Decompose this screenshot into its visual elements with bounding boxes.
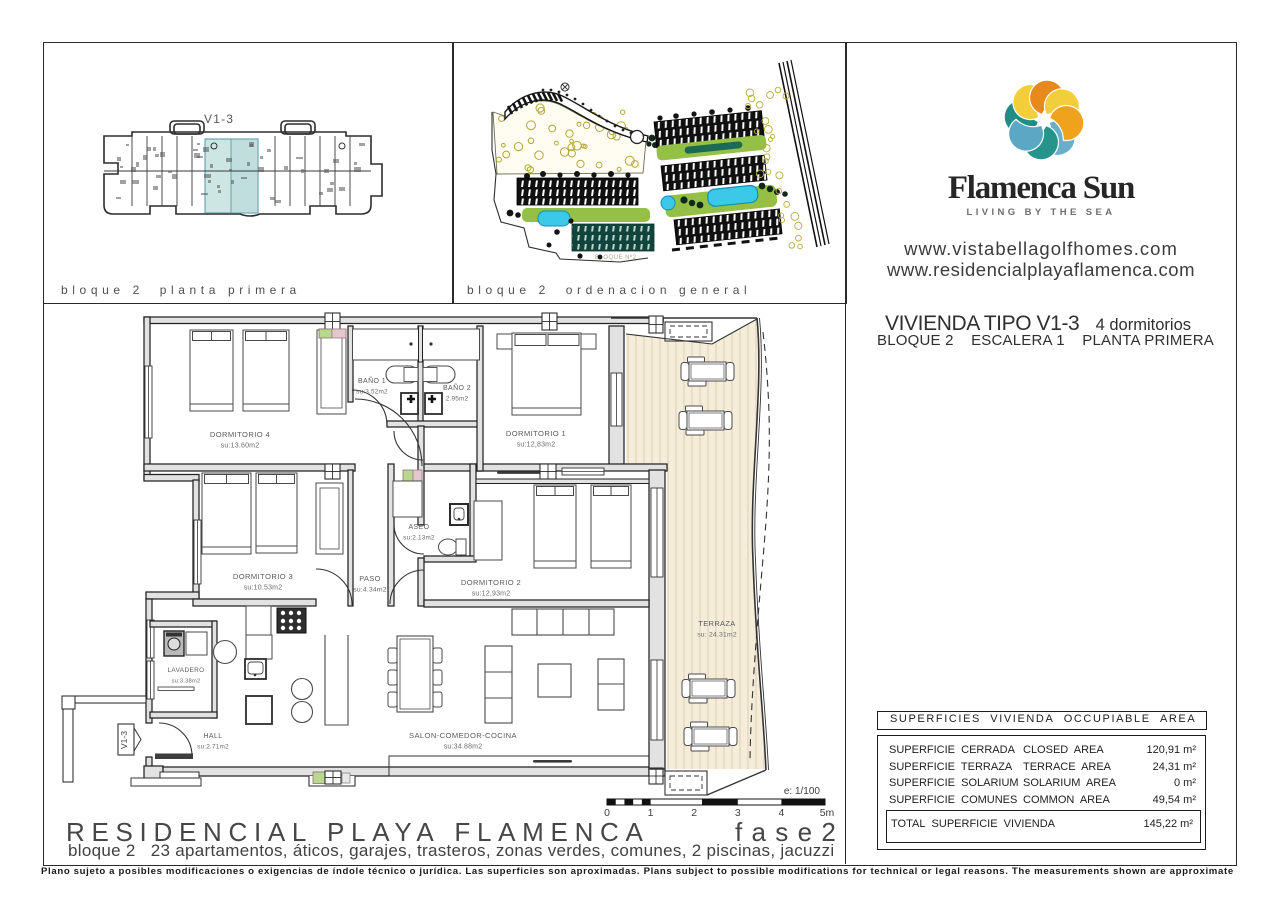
svg-text:ASEO: ASEO: [408, 524, 429, 531]
svg-text:2.95m2: 2.95m2: [446, 396, 469, 403]
svg-text:su:12,83m2: su:12,83m2: [517, 442, 556, 449]
svg-text:su:3.38m2: su:3.38m2: [172, 679, 201, 685]
svg-text:DORMITORIO 1: DORMITORIO 1: [506, 429, 566, 438]
svg-text:DORMITORIO 4: DORMITORIO 4: [210, 430, 270, 439]
svg-text:e: 1/100: e: 1/100: [784, 786, 821, 797]
svg-text:V1-3: V1-3: [204, 112, 234, 126]
svg-text:HALL: HALL: [203, 733, 222, 740]
svg-text:su:12,93m2: su:12,93m2: [472, 591, 511, 598]
svg-text:V1-3: V1-3: [119, 731, 129, 749]
svg-text:su:2.13m2: su:2.13m2: [403, 535, 435, 542]
svg-text:su:10.53m2: su:10.53m2: [244, 585, 283, 592]
svg-text:PASO: PASO: [359, 574, 381, 583]
svg-text:BAÑO 2: BAÑO 2: [443, 383, 471, 392]
svg-text:su:4.34m2: su:4.34m2: [353, 587, 387, 594]
svg-text:DORMITORIO 2: DORMITORIO 2: [461, 578, 521, 587]
svg-text:2: 2: [691, 807, 697, 819]
svg-text:LAVADERO: LAVADERO: [167, 667, 204, 674]
svg-text:su:34.88m2: su:34.88m2: [444, 744, 483, 751]
svg-text:su:13.60m2: su:13.60m2: [221, 443, 260, 450]
svg-text:BAÑO 1: BAÑO 1: [358, 376, 386, 385]
svg-text:DORMITORIO 3: DORMITORIO 3: [233, 572, 293, 581]
svg-text:su: 24.31m2: su: 24.31m2: [697, 632, 737, 639]
svg-text:TERRAZA: TERRAZA: [698, 619, 735, 628]
svg-text:su:3.52m2: su:3.52m2: [356, 389, 388, 396]
svg-text:su:2.71m2: su:2.71m2: [197, 744, 229, 751]
svg-text:SALON-COMEDOR-COCINA: SALON-COMEDOR-COCINA: [409, 731, 518, 740]
